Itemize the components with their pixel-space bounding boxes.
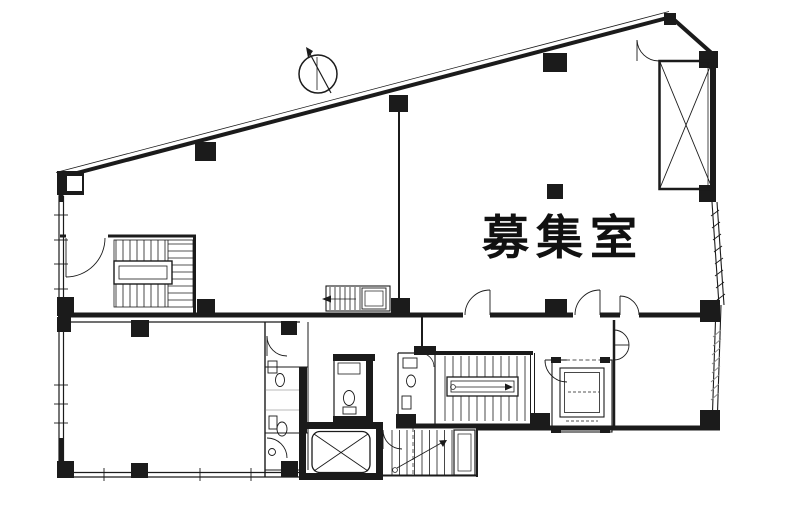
north-arrow-icon — [299, 47, 337, 93]
center-wc — [333, 354, 375, 422]
small-staircase — [322, 286, 390, 311]
northwest-staircase — [60, 236, 196, 315]
east-elevator — [551, 357, 612, 433]
floorplan-page: 募集室 — [0, 0, 787, 507]
floorplan-drawing — [0, 0, 787, 507]
lower-staircase — [383, 428, 475, 477]
central-elevator — [299, 422, 383, 480]
vacant-room-label: 募集室 — [482, 199, 644, 268]
central-staircase — [445, 356, 525, 421]
mid-wc — [402, 353, 434, 409]
